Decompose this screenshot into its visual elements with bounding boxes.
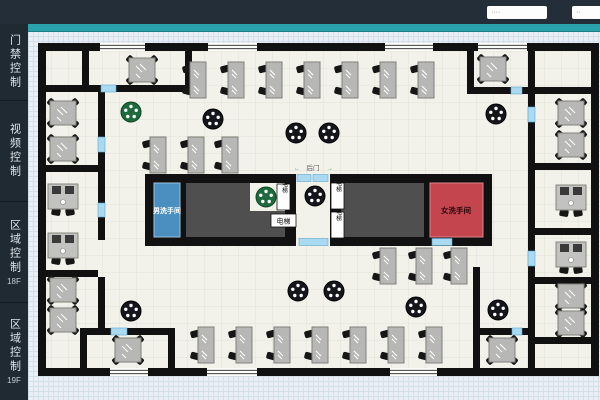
sidebar-item-area-control-19f[interactable]: 区域控制 19F <box>0 303 28 400</box>
womens-restroom-label: 女洗手间 <box>441 205 471 215</box>
sidebar-item-label: 视频控制 <box>9 123 20 179</box>
header-secondary-input[interactable] <box>572 6 600 19</box>
elevator-label: 电梯 <box>277 217 291 226</box>
floor-plan-svg: 电梯 电梯 电梯 电梯 男洗手间 女洗手间 ← 后门 → <box>28 31 600 400</box>
sidebar-item-floor: 18F <box>7 277 21 286</box>
teal-accent-bar <box>20 24 600 32</box>
top-header-bar <box>0 0 600 24</box>
elevator-label: 电梯 <box>281 180 288 194</box>
header-search-input[interactable] <box>487 6 547 19</box>
floor-plan-map: 电梯 电梯 电梯 电梯 男洗手间 女洗手间 ← 后门 → <box>28 31 600 400</box>
sidebar-item-label: 区域控制 <box>9 318 20 374</box>
core-block <box>186 183 250 237</box>
arrow-right-icon: → <box>327 166 333 172</box>
elevator-label: 电梯 <box>335 179 342 193</box>
sidebar-item-label: 区域控制 <box>9 219 20 275</box>
arrow-left-icon: ← <box>294 166 300 172</box>
sidebar-item-label: 门禁控制 <box>9 34 20 90</box>
sidebar-item-video-control[interactable]: 视频控制 <box>0 101 28 202</box>
sidebar-item-area-control-18f[interactable]: 区域控制 18F <box>0 202 28 303</box>
elevator-label: 电梯 <box>335 208 342 222</box>
sidebar-nav: 门禁控制 视频控制 区域控制 18F 区域控制 19F <box>0 24 28 400</box>
sidebar-item-door-access-control[interactable]: 门禁控制 <box>0 24 28 101</box>
sidebar-item-floor: 19F <box>7 376 21 385</box>
svg-text:后门: 后门 <box>307 163 320 172</box>
mens-restroom-label: 男洗手间 <box>153 206 181 215</box>
access-control-app: { "header": { "input1_placeholder": "···… <box>0 0 600 400</box>
core-block <box>341 183 424 237</box>
